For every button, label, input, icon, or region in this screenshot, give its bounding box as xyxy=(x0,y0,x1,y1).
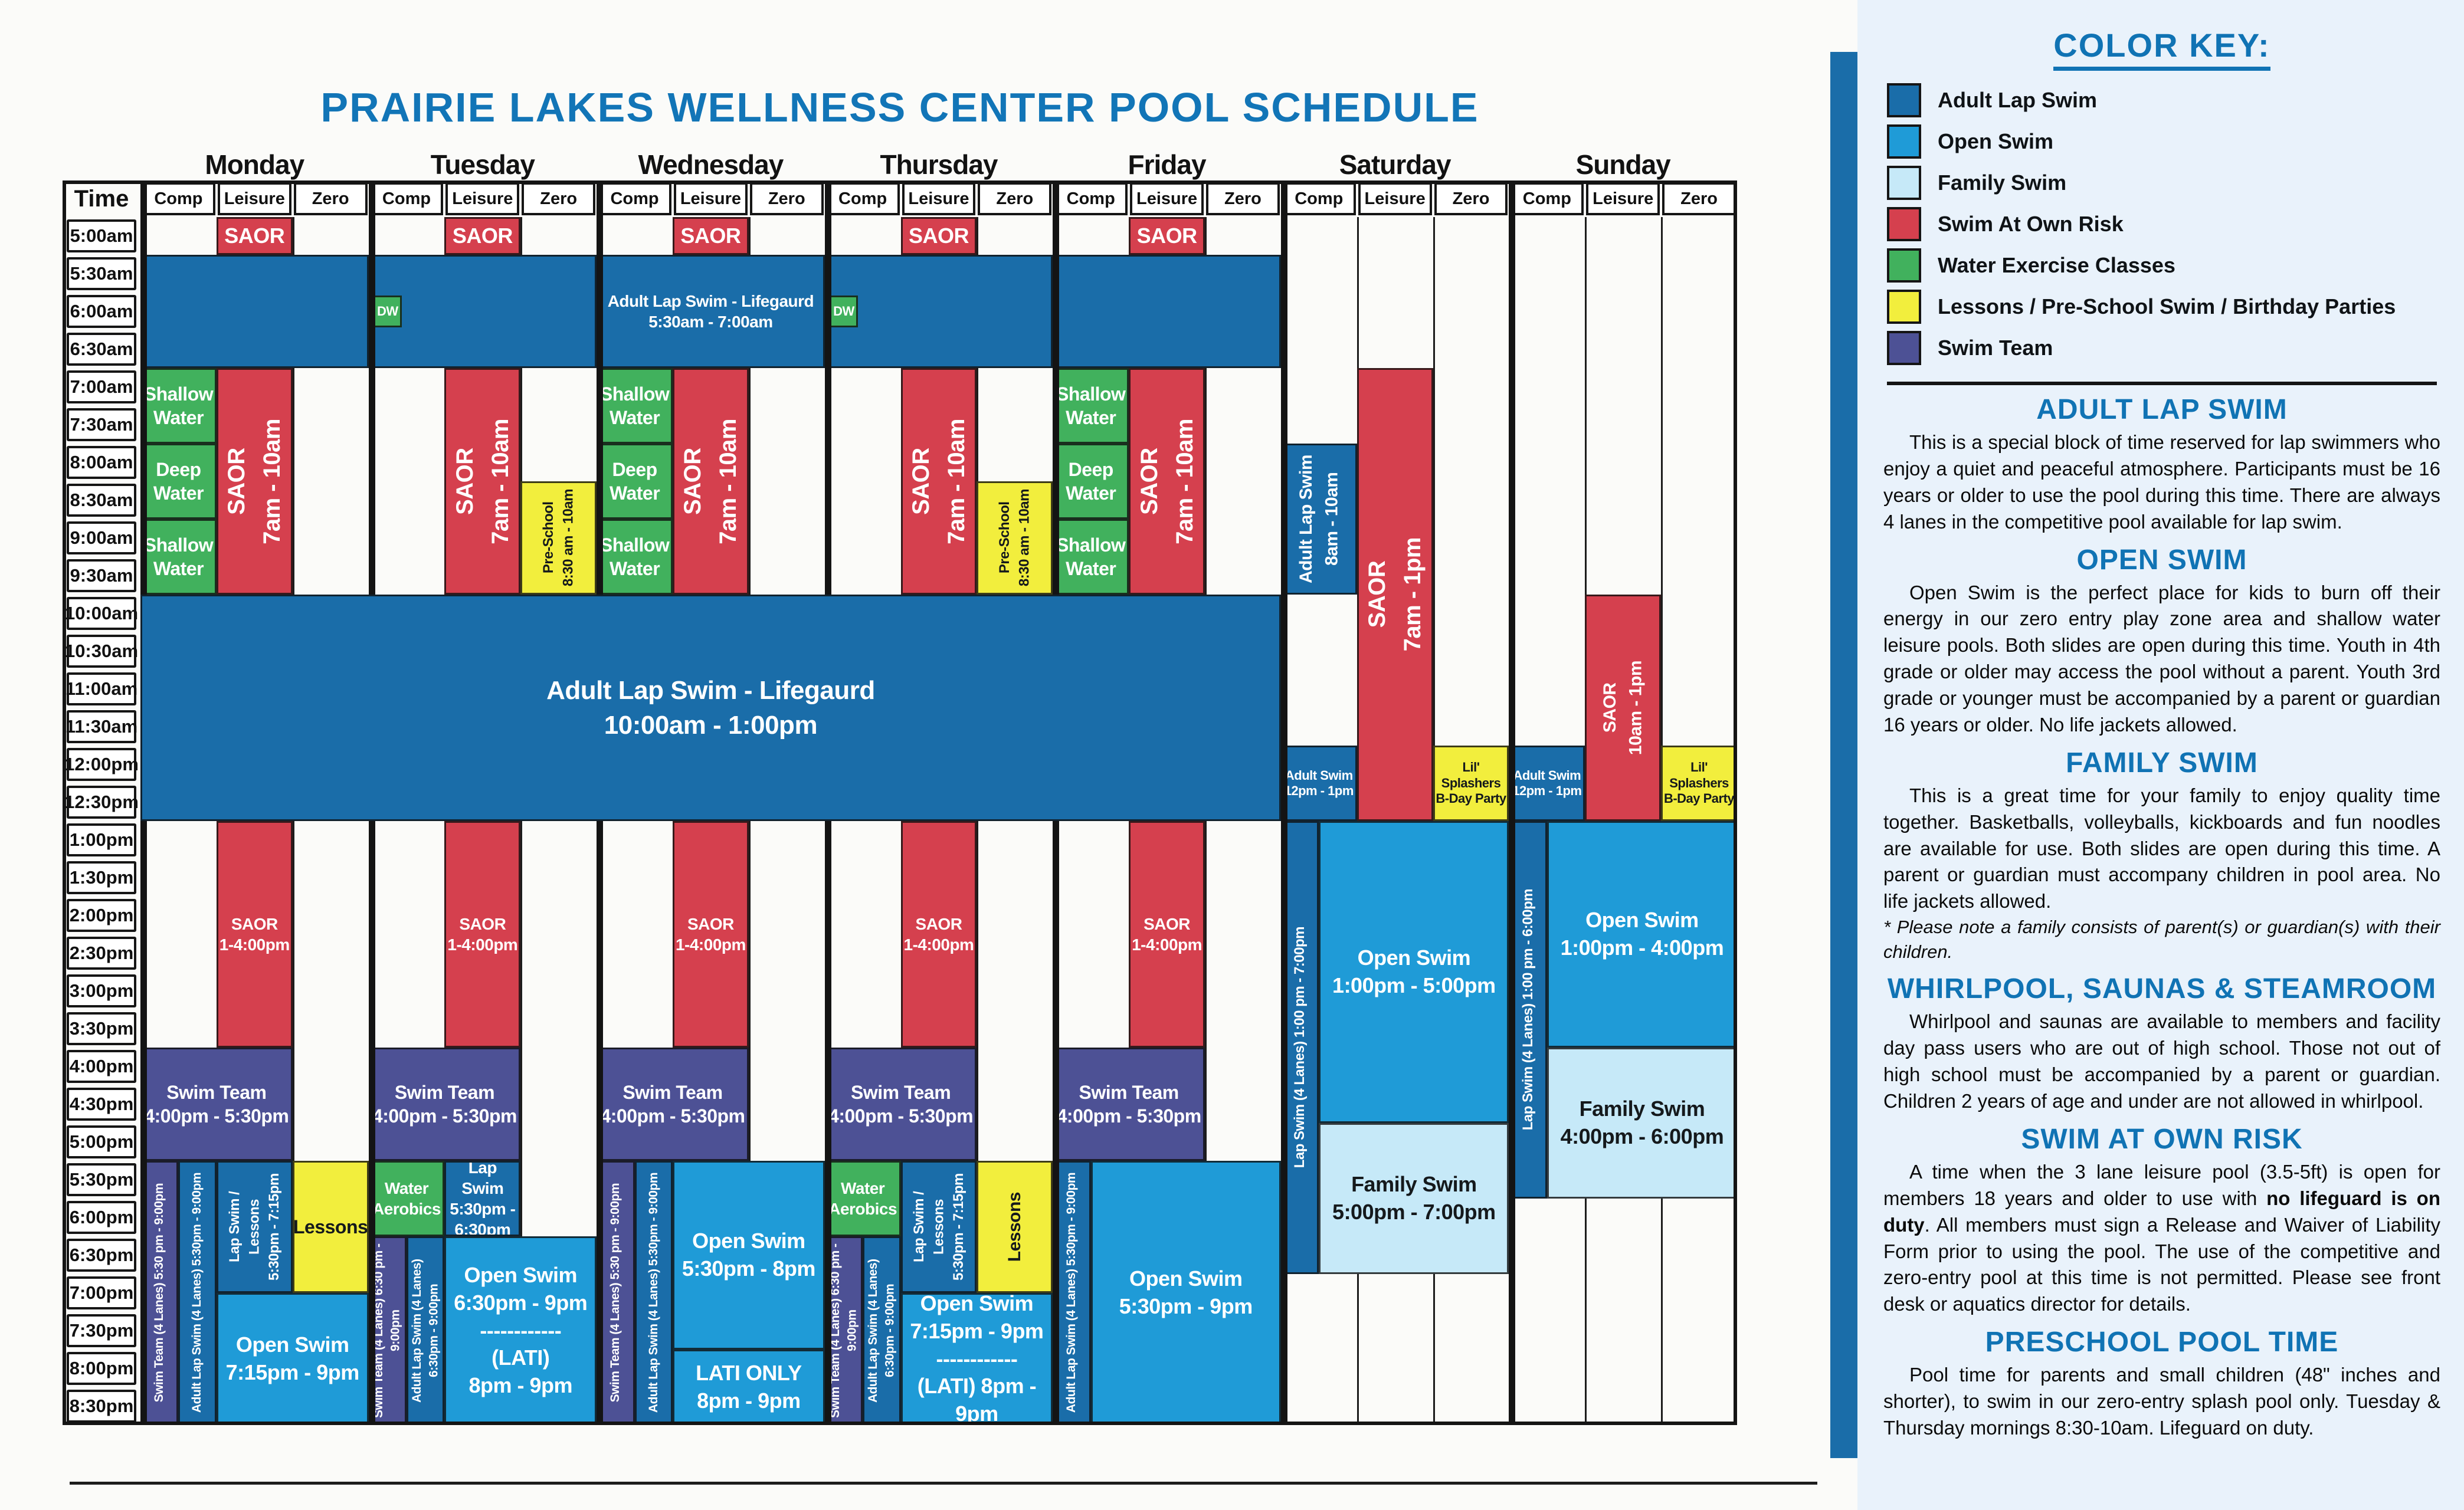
schedule-block: SAOR xyxy=(673,217,749,255)
time-label: 2:00pm xyxy=(67,899,136,932)
schedule-block: Lap Swim (4 Lanes) 1:00 pm - 6:00pm xyxy=(1509,821,1546,1199)
schedule-block: Lil' SplashersB-Day Party xyxy=(1661,746,1737,821)
subcolumn-header-comp: Comp xyxy=(370,182,444,215)
time-label: 8:00pm xyxy=(67,1352,136,1385)
block-label: Swim Team4:00pm - 5:30pm xyxy=(1057,1081,1201,1128)
block-label: Adult Lap Swim (4 Lanes) 6:30pm - 9:00pm xyxy=(865,1238,899,1423)
schedule-block: SAOR1-4:00pm xyxy=(217,821,293,1048)
section-heading: WHIRLPOOL, SAUNAS & STEAMROOM xyxy=(1883,973,2440,1005)
section-heading: FAMILY SWIM xyxy=(1883,747,2440,779)
block-label: ShallowWater xyxy=(144,533,213,580)
time-label: 9:30am xyxy=(67,559,136,592)
block-label: Open Swim5:30pm - 9pm xyxy=(1119,1265,1253,1321)
legend-swatch xyxy=(1887,331,1921,365)
schedule-block: Family Swim4:00pm - 6:00pm xyxy=(1547,1048,1737,1199)
day-header-sunday: Sunday xyxy=(1509,149,1737,180)
block-label: SAOR7am - 10am xyxy=(903,419,974,544)
block-label: SAOR10am - 1pm xyxy=(1597,661,1649,755)
block-label: Open Swim6:30pm - 9pm------------(LATI)8… xyxy=(454,1262,587,1400)
legend-label: Lessons / Pre-School Swim / Birthday Par… xyxy=(1938,294,2396,319)
legend-item: Swim At Own Risk xyxy=(1887,207,2440,241)
schedule-block: Lap Swim / Lessons5:30pm - 7:15pm xyxy=(217,1161,293,1293)
block-label: Swim Team4:00pm - 5:30pm xyxy=(372,1081,517,1128)
day-header-saturday: Saturday xyxy=(1281,149,1509,180)
block-label: Adult Lap Swim - Lifegaurd5:30am - 7:00a… xyxy=(608,291,814,332)
block-label: Adult Lap Swim (4 Lanes) 5:30pm - 9:00pm xyxy=(646,1173,662,1413)
block-label: SAOR7am - 10am xyxy=(219,419,290,544)
legend-item: Family Swim xyxy=(1887,166,2440,200)
block-label: WaterAerobics xyxy=(372,1178,441,1219)
subcolumn-header-leisure: Leisure xyxy=(218,182,291,215)
legend-label: Swim Team xyxy=(1938,336,2053,360)
time-label: 1:00pm xyxy=(67,823,136,856)
section-body: This is a special block of time reserved… xyxy=(1883,429,2440,536)
time-label: 4:30pm xyxy=(67,1088,136,1121)
time-label: 6:00pm xyxy=(67,1201,136,1234)
block-label: Lap Swim5:30pm -6:30pm xyxy=(446,1161,519,1236)
block-label: Open Swim7:15pm - 9pm xyxy=(226,1331,359,1387)
time-label: 7:30pm xyxy=(67,1314,136,1347)
schedule-block: Swim Team (4 Lanes) 6:30 pm - 9:00pm xyxy=(369,1236,407,1425)
schedule-block: Adult Swim12pm - 1pm xyxy=(1509,746,1585,821)
section-heading: ADULT LAP SWIM xyxy=(1883,393,2440,426)
schedule-block: DW xyxy=(373,296,402,327)
time-label: 3:00pm xyxy=(67,974,136,1007)
day-header-thursday: Thursday xyxy=(825,149,1053,180)
schedule-block: Adult Swim12pm - 1pm xyxy=(1281,746,1357,821)
schedule-block: Open Swim7:15pm - 9pm xyxy=(217,1293,369,1425)
schedule-block: Lil' SplashersB-Day Party xyxy=(1433,746,1509,821)
block-label: SAOR xyxy=(224,222,284,250)
block-label: Lap Swim / Lessons5:30pm - 7:15pm xyxy=(909,1163,969,1291)
legend-label: Adult Lap Swim xyxy=(1938,88,2097,113)
block-label: ShallowWater xyxy=(144,382,213,429)
schedule-block: Adult Lap Swim - Lifegaurd5:30am - 7:00a… xyxy=(597,255,825,368)
schedule-block: Swim Team4:00pm - 5:30pm xyxy=(369,1048,521,1161)
block-label: SAOR xyxy=(1137,222,1197,250)
block-label: Open Swim1:00pm - 4:00pm xyxy=(1561,907,1724,962)
info-sections: ADULT LAP SWIMThis is a special block of… xyxy=(1883,393,2440,1442)
legend-swatch xyxy=(1887,124,1921,159)
subcolumn-header-zero: Zero xyxy=(294,182,368,215)
block-label: Lap Swim (4 Lanes) 1:00 pm - 7:00pm xyxy=(1290,927,1310,1168)
schedule-block: SAOR7am - 10am xyxy=(673,368,749,595)
block-label: SAOR7am - 1pm xyxy=(1359,537,1430,651)
schedule-block: LATI ONLY8pm - 9pm xyxy=(673,1350,825,1425)
schedule-block: Adult Lap Swim (4 Lanes) 5:30pm - 9:00pm xyxy=(635,1161,673,1425)
time-label: 7:30am xyxy=(67,408,136,441)
block-label: Lap Swim / Lessons5:30pm - 7:15pm xyxy=(225,1163,284,1291)
legend-swatch xyxy=(1887,83,1921,117)
block-label: Family Swim5:00pm - 7:00pm xyxy=(1332,1171,1496,1226)
schedule-block: SAOR7am - 10am xyxy=(217,368,293,595)
block-label: SAOR7am - 10am xyxy=(675,419,746,544)
schedule-block: Swim Team4:00pm - 5:30pm xyxy=(597,1048,749,1161)
schedule-block: DW xyxy=(830,296,858,327)
schedule-block: Lessons xyxy=(977,1161,1053,1293)
block-label: SAOR7am - 10am xyxy=(447,419,518,544)
block-label: Swim Team4:00pm - 5:30pm xyxy=(828,1081,973,1128)
block-label: SAOR1-4:00pm xyxy=(447,914,517,955)
schedule-block: Swim Team4:00pm - 5:30pm xyxy=(825,1048,977,1161)
schedule-block: Swim Team (4 Lanes) 5:30 pm - 9:00pm xyxy=(597,1161,634,1425)
schedule-block: Open Swim6:30pm - 9pm------------(LATI)8… xyxy=(444,1236,597,1425)
schedule-block: Swim Team (4 Lanes) 5:30 pm - 9:00pm xyxy=(140,1161,178,1425)
legend-item: Swim Team xyxy=(1887,331,2440,365)
schedule-block: SAOR xyxy=(901,217,977,255)
schedule-block: SAOR7am - 10am xyxy=(901,368,977,595)
time-label: 3:30pm xyxy=(67,1012,136,1045)
block-label: SAOR xyxy=(680,222,740,250)
time-label: 5:00am xyxy=(67,219,136,252)
block-label: Pre-School8:30 am - 10am xyxy=(995,489,1034,586)
time-column-header: Time xyxy=(63,180,140,217)
section-heading: PRESCHOOL POOL TIME xyxy=(1883,1326,2440,1358)
subcolumn-header-comp: Comp xyxy=(1054,182,1128,215)
schedule-block: Adult Lap Swim8am - 10am xyxy=(1281,444,1357,595)
block-label: ShallowWater xyxy=(600,382,669,429)
schedule-block: ShallowWater xyxy=(1053,368,1129,444)
schedule-block: ShallowWater xyxy=(597,519,673,595)
schedule-block: SAOR1-4:00pm xyxy=(444,821,520,1048)
day-header-wednesday: Wednesday xyxy=(597,149,825,180)
scanned-pool-schedule: { "title": "PRAIRIE LAKES WELLNESS CENTE… xyxy=(0,0,2464,1510)
block-label: DeepWater xyxy=(1066,458,1116,505)
block-label: Adult Lap Swim8am - 10am xyxy=(1293,455,1345,583)
legend-label: Open Swim xyxy=(1938,129,2053,154)
legend-swatch xyxy=(1887,207,1921,241)
legend-label: Family Swim xyxy=(1938,170,2066,195)
section-note: * Please note a family consists of paren… xyxy=(1883,915,2440,964)
time-label: 8:30am xyxy=(67,484,136,517)
schedule-block: Open Swim5:30pm - 9pm xyxy=(1091,1161,1281,1425)
block-label: LATI ONLY8pm - 9pm xyxy=(696,1360,802,1415)
subcolumn-header-comp: Comp xyxy=(142,182,215,215)
time-label: 6:00am xyxy=(67,295,136,328)
time-label: 8:30pm xyxy=(67,1390,136,1423)
block-label: ShallowWater xyxy=(1056,533,1125,580)
time-label: 12:30pm xyxy=(67,786,136,819)
legend-swatch xyxy=(1887,166,1921,200)
time-label: 11:00am xyxy=(67,672,136,705)
time-label: 10:30am xyxy=(67,635,136,668)
subcolumn-header-zero: Zero xyxy=(750,182,824,215)
time-label: 8:00am xyxy=(67,446,136,479)
block-label: SAOR7am - 10am xyxy=(1132,419,1202,544)
section-body: Open Swim is the perfect place for kids … xyxy=(1883,580,2440,738)
subcolumn-header-comp: Comp xyxy=(826,182,900,215)
block-label: Family Swim4:00pm - 6:00pm xyxy=(1561,1095,1724,1151)
schedule-block: Lap Swim (4 Lanes) 1:00 pm - 7:00pm xyxy=(1281,821,1319,1274)
color-key-legend: Adult Lap SwimOpen SwimFamily SwimSwim A… xyxy=(1883,83,2440,365)
schedule-block: SAOR10am - 1pm xyxy=(1585,595,1661,821)
subcolumn-header-comp: Comp xyxy=(1282,182,1356,215)
schedule-block xyxy=(140,255,369,368)
day-header-monday: Monday xyxy=(140,149,369,180)
block-label: SAOR1-4:00pm xyxy=(904,914,974,955)
legend-label: Water Exercise Classes xyxy=(1938,253,2175,278)
block-label: Adult Lap Swim (4 Lanes) 6:30pm - 9:00pm xyxy=(409,1238,443,1423)
schedule-block: Adult Lap Swim (4 Lanes) 6:30pm - 9:00pm xyxy=(863,1236,900,1425)
block-label: SAOR xyxy=(453,222,513,250)
time-label: 7:00pm xyxy=(67,1276,136,1309)
subcolumn-header-leisure: Leisure xyxy=(674,182,748,215)
block-label: Adult Swim12pm - 1pm xyxy=(1285,768,1354,799)
time-label: 11:30am xyxy=(67,710,136,743)
schedule-grid: MondayTuesdayWednesdayThursdayFridaySatu… xyxy=(63,149,1737,1425)
page-edge-line xyxy=(70,1482,1817,1485)
section-body: Whirlpool and saunas are available to me… xyxy=(1883,1009,2440,1115)
legend-label: Swim At Own Risk xyxy=(1938,212,2124,237)
time-label: 2:30pm xyxy=(67,937,136,970)
time-label: 1:30pm xyxy=(67,861,136,894)
schedule-block: Open Swim7:15pm - 9pm------------(LATI) … xyxy=(901,1293,1053,1425)
subcolumn-header-zero: Zero xyxy=(522,182,595,215)
schedule-block: DeepWater xyxy=(1053,444,1129,519)
block-label: SAOR xyxy=(909,222,969,250)
schedule-block: WaterAerobics xyxy=(369,1161,445,1236)
block-label: Swim Team (4 Lanes) 5:30 pm - 9:00pm xyxy=(607,1183,624,1402)
schedule-block: SAOR7am - 10am xyxy=(444,368,520,595)
block-label: Swim Team4:00pm - 5:30pm xyxy=(600,1081,745,1128)
schedule-block: Swim Team4:00pm - 5:30pm xyxy=(1053,1048,1205,1161)
block-label: Lessons xyxy=(1002,1192,1028,1262)
block-label: Lil' SplashersB-Day Party xyxy=(1663,760,1735,806)
schedule-block: Lap Swim5:30pm -6:30pm xyxy=(444,1161,520,1236)
schedule-block: Swim Team (4 Lanes) 6:30 pm - 9:00pm xyxy=(825,1236,863,1425)
subcolumn-header-comp: Comp xyxy=(1510,182,1584,215)
time-label: 5:30pm xyxy=(67,1163,136,1196)
block-label: Adult Swim12pm - 1pm xyxy=(1512,768,1581,799)
legend-swatch xyxy=(1887,290,1921,324)
schedule-block: Open Swim1:00pm - 5:00pm xyxy=(1319,821,1509,1123)
block-label: Pre-School8:30 am - 10am xyxy=(539,489,578,586)
time-label: 5:00pm xyxy=(67,1125,136,1158)
time-label: 7:00am xyxy=(67,370,136,403)
block-label: Lap Swim (4 Lanes) 1:00 pm - 6:00pm xyxy=(1518,889,1538,1130)
legend-item: Open Swim xyxy=(1887,124,2440,159)
schedule-block: SAOR7am - 10am xyxy=(1129,368,1205,595)
schedule-block: Open Swim5:30pm - 8pm xyxy=(673,1161,825,1350)
subcolumn-header-zero: Zero xyxy=(1206,182,1280,215)
block-label: DeepWater xyxy=(153,458,204,505)
subcolumn-header-comp: Comp xyxy=(598,182,671,215)
schedule-block: ShallowWater xyxy=(597,368,673,444)
schedule-block: Open Swim1:00pm - 4:00pm xyxy=(1547,821,1737,1048)
panel-divider-bar xyxy=(1830,52,1857,1458)
schedule-block: SAOR1-4:00pm xyxy=(901,821,977,1048)
block-label: DW xyxy=(377,304,398,319)
section-body: Pool time for parents and small children… xyxy=(1883,1362,2440,1442)
subcolumn-header-zero: Zero xyxy=(1434,182,1508,215)
block-label: SAOR1-4:00pm xyxy=(676,914,746,955)
legend-item: Water Exercise Classes xyxy=(1887,248,2440,283)
schedule-block: DeepWater xyxy=(597,444,673,519)
schedule-block: SAOR1-4:00pm xyxy=(673,821,749,1048)
block-label: SAOR1-4:00pm xyxy=(1132,914,1202,955)
schedule-block: SAOR xyxy=(1129,217,1205,255)
schedule-block: SAOR1-4:00pm xyxy=(1129,821,1205,1048)
subcolumn-header-zero: Zero xyxy=(978,182,1051,215)
schedule-block: SAOR7am - 1pm xyxy=(1357,368,1433,821)
schedule-block: ShallowWater xyxy=(140,519,217,595)
schedule-block: SAOR xyxy=(217,217,293,255)
block-label: Lessons xyxy=(293,1215,368,1239)
legend-divider xyxy=(1887,382,2437,385)
time-label: 4:00pm xyxy=(67,1050,136,1083)
subcolumn-header-leisure: Leisure xyxy=(1130,182,1204,215)
time-label: 6:30am xyxy=(67,333,136,366)
schedule-block xyxy=(825,255,1053,368)
schedule-block: Adult Lap Swim (4 Lanes) 5:30pm - 9:00pm xyxy=(1053,1161,1090,1425)
time-label: 10:00am xyxy=(67,597,136,630)
subcolumn-header-leisure: Leisure xyxy=(1358,182,1432,215)
block-label: DW xyxy=(833,304,854,319)
section-heading: SWIM AT OWN RISK xyxy=(1883,1123,2440,1156)
block-label: SAOR1-4:00pm xyxy=(219,914,290,955)
legend-item: Lessons / Pre-School Swim / Birthday Par… xyxy=(1887,290,2440,324)
block-label: ShallowWater xyxy=(1056,382,1125,429)
color-key-heading: COLOR KEY: xyxy=(1883,26,2440,64)
subcolumn-header-leisure: Leisure xyxy=(1586,182,1660,215)
time-label: 9:00am xyxy=(67,521,136,554)
legend-swatch xyxy=(1887,248,1921,283)
section-body: This is a great time for your family to … xyxy=(1883,783,2440,915)
info-panel: COLOR KEY: Adult Lap SwimOpen SwimFamily… xyxy=(1857,0,2464,1510)
block-label: Adult Lap Swim (4 Lanes) 5:30pm - 9:00pm xyxy=(189,1173,205,1413)
page-title: PRAIRIE LAKES WELLNESS CENTER POOL SCHED… xyxy=(63,84,1737,131)
subcolumn-header-leisure: Leisure xyxy=(445,182,519,215)
schedule-block: Pre-School8:30 am - 10am xyxy=(977,481,1053,595)
section-heading: OPEN SWIM xyxy=(1883,544,2440,576)
subcolumn-header-leisure: Leisure xyxy=(902,182,976,215)
time-label: 5:30am xyxy=(67,257,136,290)
block-label: Adult Lap Swim - Lifegaurd10:00am - 1:00… xyxy=(546,673,875,743)
subcolumn-header-zero: Zero xyxy=(1662,182,1736,215)
schedule-block: Adult Lap Swim (4 Lanes) 6:30pm - 9:00pm xyxy=(407,1236,444,1425)
block-label: ShallowWater xyxy=(600,533,669,580)
color-key-heading-text: COLOR KEY: xyxy=(2053,27,2270,71)
day-header-friday: Friday xyxy=(1053,149,1281,180)
schedule-block: Lap Swim / Lessons5:30pm - 7:15pm xyxy=(901,1161,977,1293)
schedule-block: WaterAerobics xyxy=(825,1161,901,1236)
section-body: A time when the 3 lane leisure pool (3.5… xyxy=(1883,1159,2440,1318)
schedule-block xyxy=(369,255,597,368)
schedule-block: Lessons xyxy=(293,1161,369,1293)
schedule-block: Adult Lap Swim - Lifegaurd10:00am - 1:00… xyxy=(140,595,1281,821)
schedule-block: Pre-School8:30 am - 10am xyxy=(520,481,597,595)
block-label: Open Swim7:15pm - 9pm------------(LATI) … xyxy=(903,1293,1051,1425)
day-header-tuesday: Tuesday xyxy=(369,149,597,180)
time-label: 6:30pm xyxy=(67,1239,136,1272)
block-label: Open Swim1:00pm - 5:00pm xyxy=(1332,944,1496,1000)
block-label: WaterAerobics xyxy=(828,1178,897,1219)
block-label: Adult Lap Swim (4 Lanes) 5:30pm - 9:00pm xyxy=(1063,1173,1080,1413)
schedule-block: ShallowWater xyxy=(1053,519,1129,595)
block-label: Open Swim5:30pm - 8pm xyxy=(682,1227,815,1283)
legend-item: Adult Lap Swim xyxy=(1887,83,2440,117)
schedule-block: Adult Lap Swim (4 Lanes) 5:30pm - 9:00pm xyxy=(178,1161,216,1425)
block-label: Swim Team4:00pm - 5:30pm xyxy=(144,1081,289,1128)
schedule-block: Swim Team4:00pm - 5:30pm xyxy=(140,1048,293,1161)
block-label: Lil' SplashersB-Day Party xyxy=(1435,760,1508,806)
block-label: Swim Team (4 Lanes) 6:30 pm - 9:00pm xyxy=(371,1238,404,1423)
block-label: Swim Team (4 Lanes) 5:30 pm - 9:00pm xyxy=(151,1183,168,1402)
schedule-block: DeepWater xyxy=(140,444,217,519)
time-label: 12:00pm xyxy=(67,748,136,781)
schedule-block: Family Swim5:00pm - 7:00pm xyxy=(1319,1123,1509,1274)
schedule-block: SAOR xyxy=(444,217,520,255)
schedule-block xyxy=(1053,255,1281,368)
schedule-block: ShallowWater xyxy=(140,368,217,444)
block-label: Swim Team (4 Lanes) 6:30 pm - 9:00pm xyxy=(827,1238,861,1423)
block-label: DeepWater xyxy=(610,458,660,505)
